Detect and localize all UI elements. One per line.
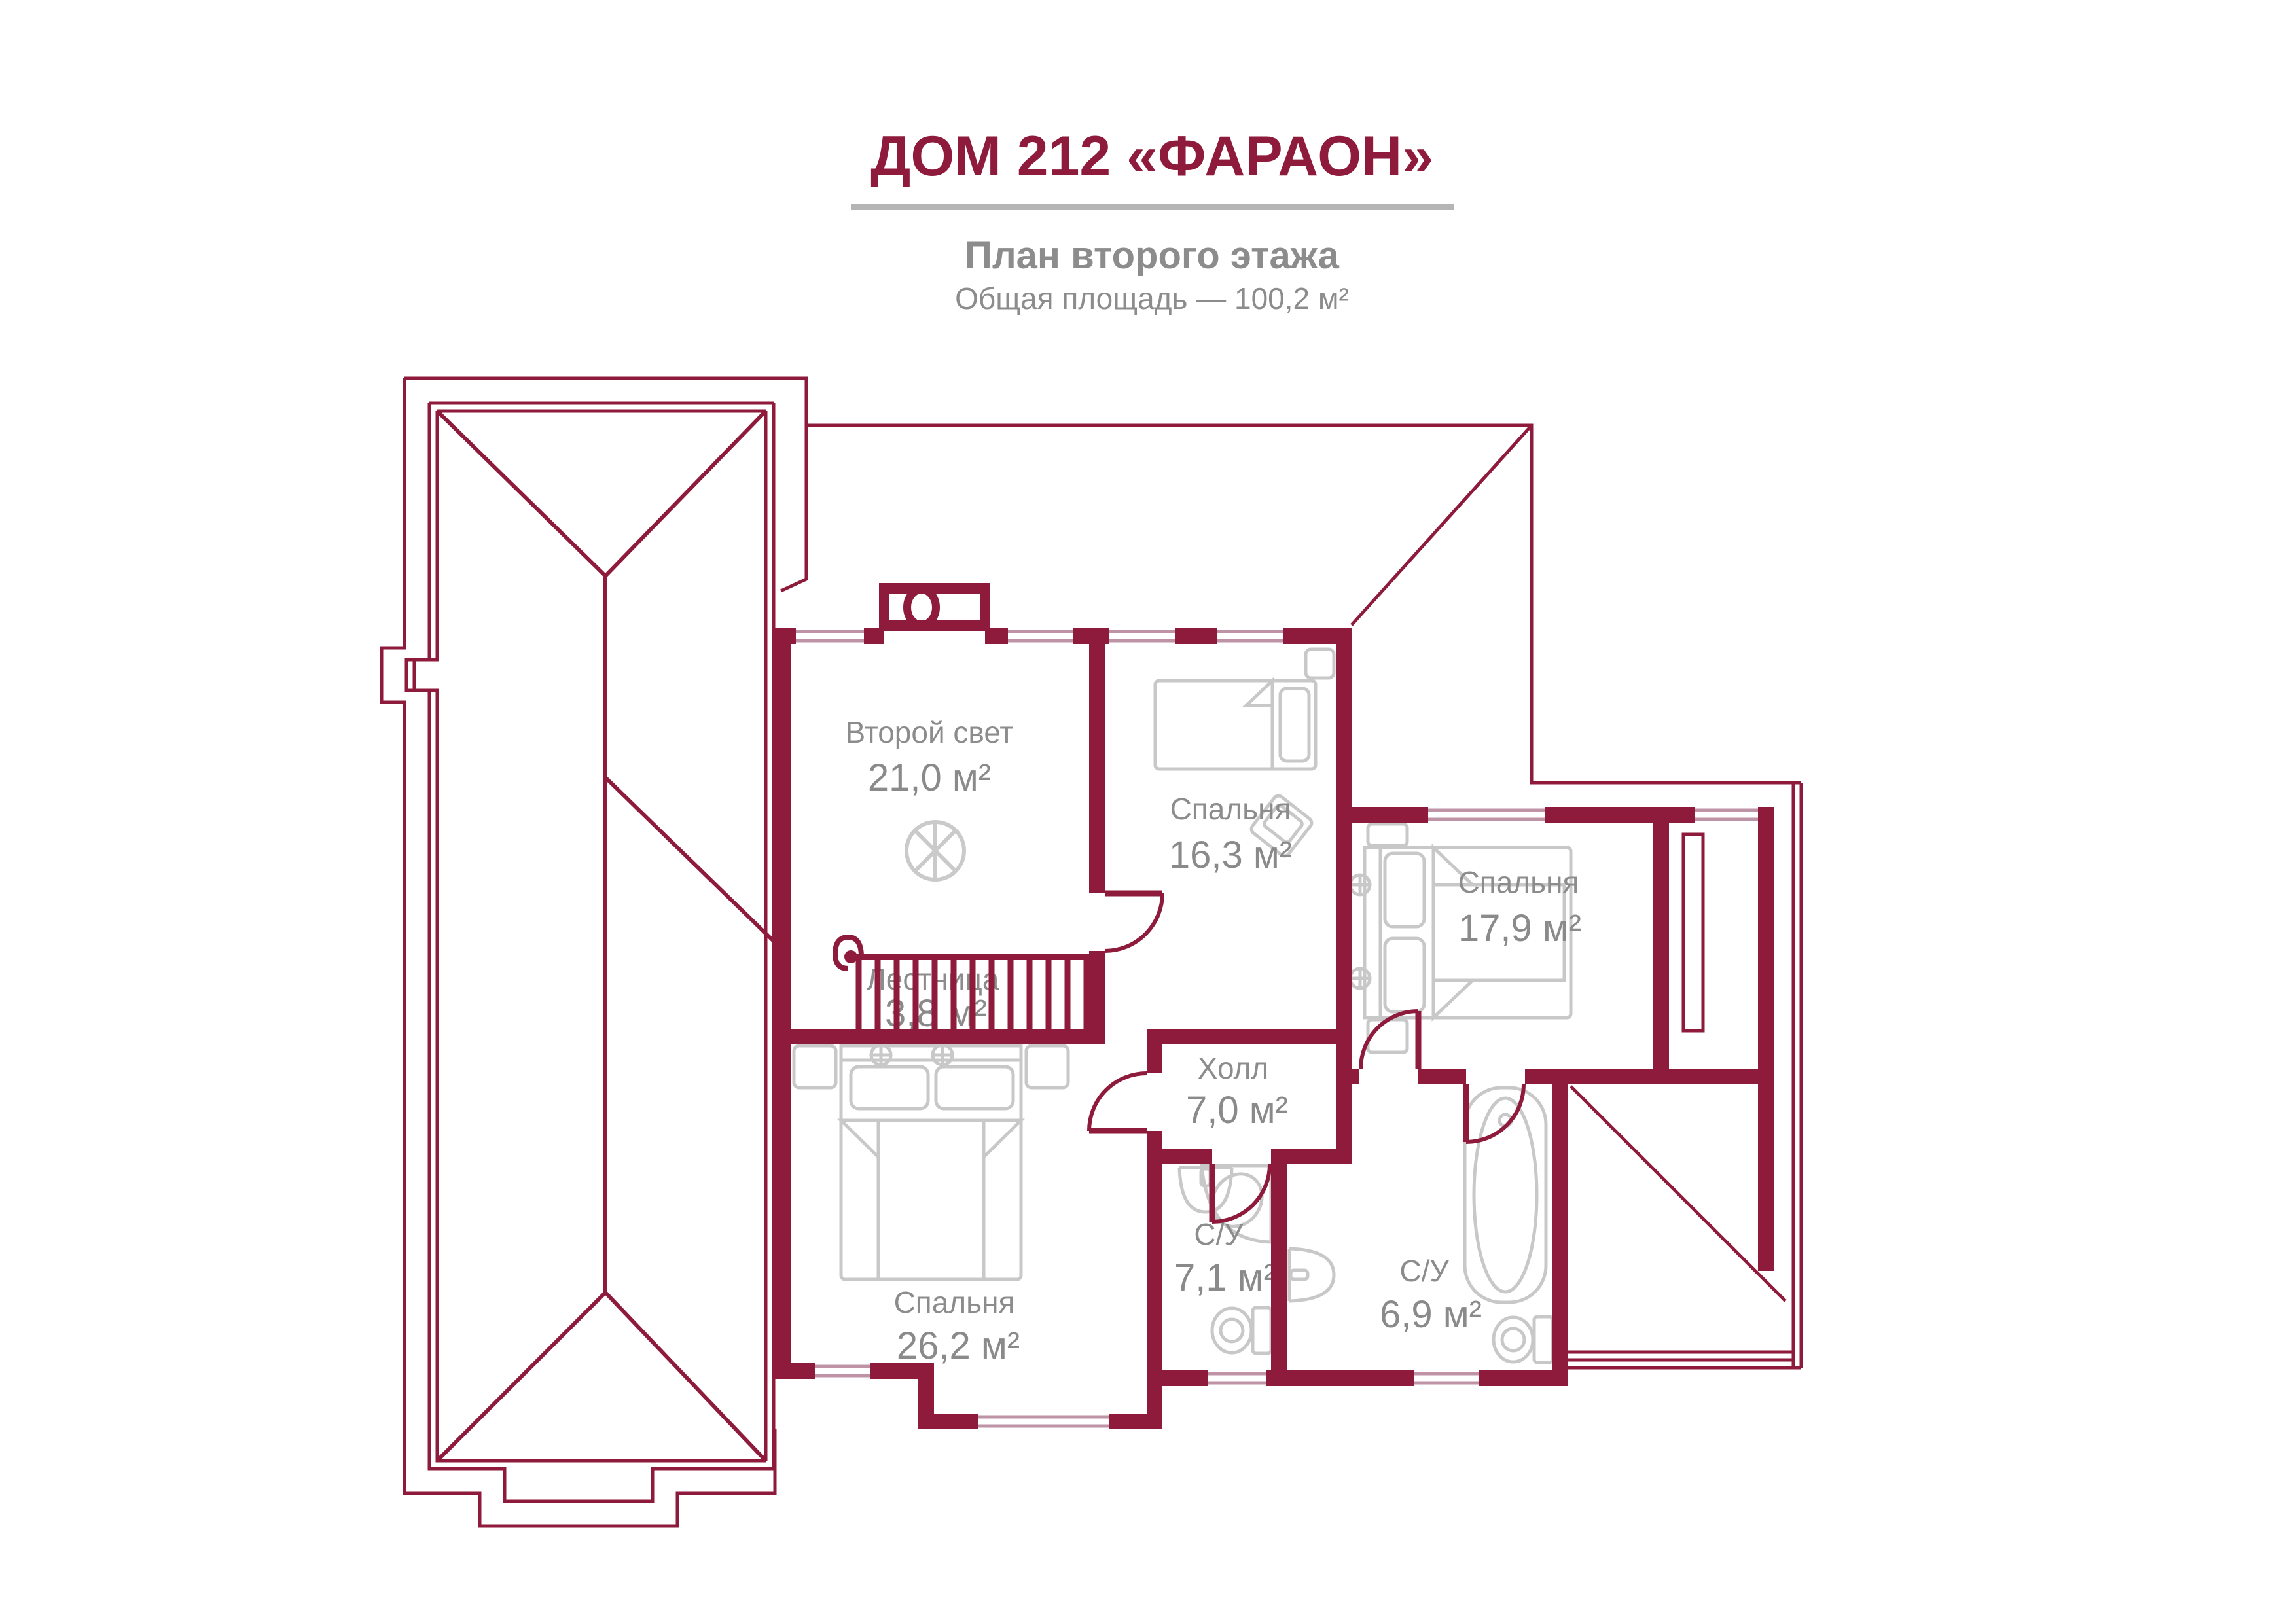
left-roof-hips xyxy=(437,411,775,1461)
total-area-label: Общая площадь — 100,2 м² xyxy=(955,281,1349,315)
wall xyxy=(1266,1370,1414,1386)
wall xyxy=(1147,1149,1212,1164)
door-landing-to-bedroom16 xyxy=(1105,893,1162,951)
wall xyxy=(1089,628,1105,893)
wall xyxy=(918,1414,978,1429)
window xyxy=(1414,1374,1479,1383)
floor-plan-page: ДОМ 212 «ФАРАОН» План второго этажа Обща… xyxy=(0,0,2296,1623)
room-area-bath-right: 6,9 м² xyxy=(1380,1293,1482,1336)
wall xyxy=(1089,951,1105,1044)
room-label-bedroom26: Спальня xyxy=(894,1285,1015,1319)
page-title: ДОМ 212 «ФАРАОН» xyxy=(870,125,1433,188)
room-label-bedroom16: Спальня xyxy=(1170,792,1291,826)
bathtub-icon xyxy=(1465,1088,1546,1302)
sink-icon-bath-right xyxy=(1289,1249,1334,1301)
door-hall-to-bedroom26 xyxy=(1089,1073,1147,1131)
room-area-bedroom16: 16,3 м² xyxy=(1169,834,1292,876)
wall xyxy=(775,1363,815,1379)
toilet-icon-bath-right xyxy=(1494,1317,1552,1363)
window xyxy=(1109,632,1175,641)
left-roof-eave-inner xyxy=(414,411,766,1461)
wall xyxy=(1336,1069,1359,1084)
room-area-bedroom26: 26,2 м² xyxy=(897,1325,1020,1367)
wall xyxy=(1147,1029,1162,1073)
window xyxy=(978,1417,1109,1426)
right-roof-edge-double xyxy=(1793,783,1801,1368)
window xyxy=(1428,810,1545,819)
room-label-hall: Холл xyxy=(1198,1051,1268,1085)
wall xyxy=(985,628,1008,644)
window xyxy=(796,632,864,641)
wall xyxy=(1758,807,1774,1271)
window xyxy=(1208,1374,1266,1383)
wall xyxy=(775,1029,1105,1044)
room-label-second-light: Второй свет xyxy=(846,715,1014,749)
bed-double-vertical-icon xyxy=(794,1046,1068,1279)
room-area-second-light: 21,0 м² xyxy=(868,757,991,799)
bed-single-icon xyxy=(1155,649,1334,769)
room-area-hall: 7,0 м² xyxy=(1186,1089,1288,1132)
page-subtitle: План второго этажа xyxy=(965,234,1339,277)
window xyxy=(815,1366,870,1376)
wall xyxy=(1552,1069,1568,1386)
window xyxy=(1695,810,1758,819)
left-roof-outer xyxy=(382,378,806,1526)
room-area-bath-left: 7,1 м² xyxy=(1174,1257,1276,1299)
wall xyxy=(1336,807,1428,823)
floor-plan-canvas: ДОМ 212 «ФАРАОН» План второго этажа Обща… xyxy=(0,0,2296,1623)
wall xyxy=(1545,807,1695,823)
title-block: ДОМ 212 «ФАРАОН» План второго этажа Обща… xyxy=(851,125,1454,315)
toilet-icon-bath-left xyxy=(1212,1308,1271,1353)
wall xyxy=(864,628,884,644)
wall xyxy=(1175,628,1217,644)
chimney xyxy=(884,588,985,626)
wall xyxy=(775,628,791,1379)
window xyxy=(1008,632,1073,641)
wall xyxy=(1653,807,1669,1084)
room-label-bedroom17: Спальня xyxy=(1458,865,1579,899)
wall xyxy=(1147,1029,1352,1044)
wall xyxy=(1271,1149,1287,1386)
left-roof-eave-outer xyxy=(406,403,774,1501)
chandelier-icon xyxy=(906,822,964,880)
room-area-bedroom17: 17,9 м² xyxy=(1458,907,1581,950)
room-label-bath-right: С/У xyxy=(1399,1254,1449,1288)
niche-door-leaf xyxy=(1683,834,1703,1031)
window xyxy=(1217,632,1283,641)
wall xyxy=(1147,1370,1208,1386)
wall xyxy=(1418,1069,1466,1084)
